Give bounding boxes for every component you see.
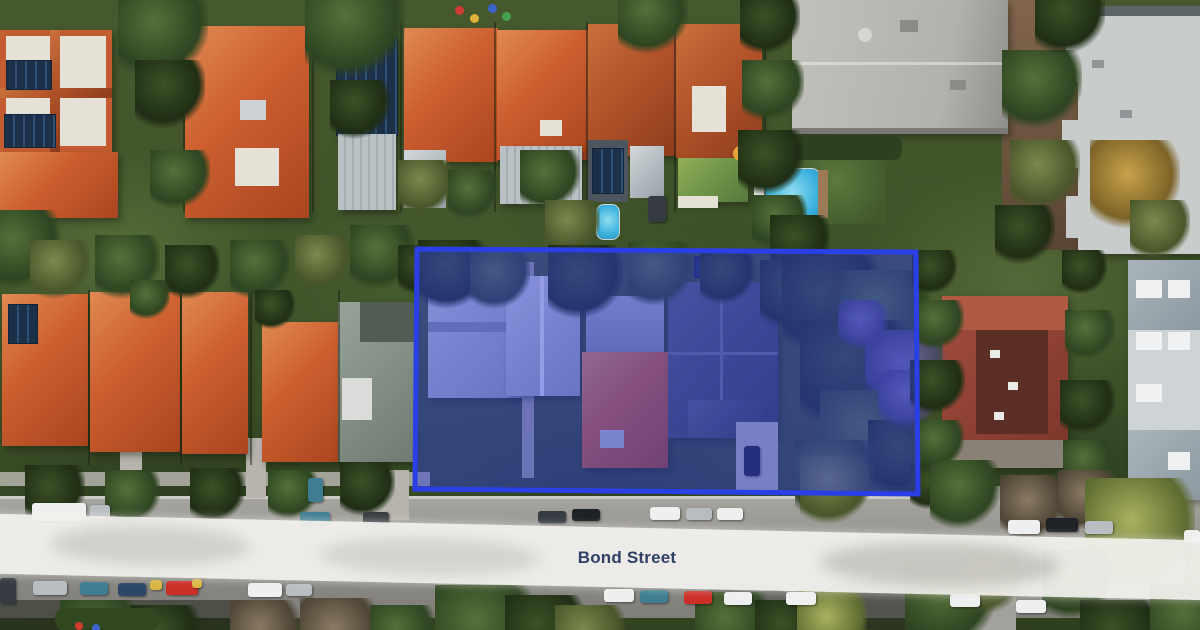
- tree: [740, 0, 800, 55]
- tree: [1002, 50, 1082, 130]
- playground-equipment: [470, 14, 479, 23]
- pool-deck: [818, 170, 828, 218]
- parked-car: [1046, 518, 1078, 532]
- parked-car: [717, 508, 743, 520]
- hedge: [55, 608, 160, 630]
- roof-ridge: [792, 62, 1008, 65]
- rooftop-courtyard: [235, 148, 279, 186]
- rooftop-unit: [1120, 110, 1132, 118]
- tree: [130, 280, 170, 320]
- parked-car: [308, 478, 323, 502]
- parked-car: [33, 581, 67, 595]
- tree: [700, 250, 755, 305]
- tree: [742, 60, 804, 122]
- solar-panels: [6, 60, 52, 90]
- parked-car: [686, 508, 712, 520]
- playground-equipment: [455, 6, 464, 15]
- parked-car: [572, 509, 600, 521]
- rooftop-structure: [540, 120, 562, 136]
- house-roof: [182, 292, 248, 454]
- roof-ridge: [668, 352, 778, 355]
- tree: [738, 130, 804, 196]
- tree: [370, 605, 435, 630]
- roof-gable: [360, 302, 414, 342]
- playground-equipment: [92, 624, 100, 630]
- tree: [305, 0, 405, 80]
- tree: [330, 80, 390, 140]
- rooftop-structure: [600, 430, 624, 448]
- playground-equipment: [488, 4, 497, 13]
- rooftop-unit: [1092, 60, 1104, 68]
- band-tree-shadow: [320, 535, 541, 578]
- hedge: [912, 250, 957, 295]
- solar-panels: [4, 114, 56, 148]
- house-roof: [338, 134, 396, 210]
- roof-edge: [792, 128, 1008, 134]
- parked-car: [950, 594, 980, 607]
- tree: [1080, 600, 1160, 630]
- dormer: [1136, 384, 1162, 402]
- house-roof: [404, 28, 498, 162]
- dormer: [1136, 280, 1162, 298]
- house-roof: [262, 322, 342, 462]
- tree: [548, 245, 623, 320]
- parked-car: [248, 583, 282, 597]
- parked-car: [538, 511, 566, 523]
- house-roof: [630, 146, 664, 198]
- playground-equipment: [75, 622, 83, 630]
- tree: [300, 598, 380, 630]
- hedge: [1065, 310, 1115, 360]
- house-roof: [582, 352, 668, 468]
- hedge: [910, 360, 965, 415]
- band-tree-shadow: [50, 523, 251, 567]
- tree: [295, 235, 350, 290]
- street-name-label: Bond Street: [552, 547, 702, 569]
- dormer: [1168, 332, 1190, 350]
- hedge: [190, 468, 245, 523]
- tree: [628, 242, 693, 307]
- parked-car: [604, 589, 634, 602]
- solar-panels: [8, 304, 38, 344]
- awning: [678, 196, 718, 208]
- tree: [448, 170, 498, 220]
- tree: [1035, 0, 1105, 55]
- parked-car: [724, 592, 752, 605]
- fence-line: [180, 290, 182, 465]
- parked-car: [1008, 520, 1040, 534]
- parked-car: [684, 591, 712, 604]
- parked-car: [192, 579, 202, 588]
- skylight: [994, 412, 1004, 420]
- tree: [555, 605, 625, 630]
- parked-car: [744, 446, 760, 476]
- tree: [398, 160, 453, 215]
- hedge: [1060, 380, 1115, 435]
- tree: [838, 300, 888, 350]
- rooftop-structure: [240, 100, 266, 120]
- parked-car: [150, 580, 162, 590]
- tree: [135, 60, 205, 130]
- tree: [165, 245, 220, 300]
- tree: [800, 455, 870, 525]
- parked-car: [640, 590, 668, 603]
- parked-car: [1085, 521, 1113, 534]
- tree: [255, 290, 295, 330]
- fence-line: [88, 290, 90, 465]
- tree: [995, 205, 1055, 265]
- skylight: [1008, 382, 1018, 390]
- tree: [470, 250, 530, 310]
- parked-car: [0, 578, 16, 604]
- parked-car: [650, 507, 680, 520]
- skylight: [990, 350, 1000, 358]
- house-roof: [497, 30, 589, 160]
- dormer: [1168, 452, 1190, 470]
- rooftop-structure: [342, 378, 372, 420]
- parked-car: [118, 583, 146, 596]
- playground-equipment: [502, 12, 511, 21]
- solar-panels: [592, 148, 624, 194]
- hedge: [340, 462, 395, 517]
- tree: [30, 240, 90, 300]
- parked-car: [80, 582, 108, 595]
- dormer: [1168, 280, 1190, 298]
- fence-line: [250, 290, 252, 465]
- rooftop-unit: [900, 20, 918, 32]
- house-roof: [0, 152, 118, 218]
- tree: [1130, 200, 1190, 260]
- fence-line: [338, 290, 340, 465]
- tree: [230, 600, 300, 630]
- fence-line: [414, 290, 416, 465]
- aerial-photo: Bond Street: [0, 0, 1200, 630]
- tree: [150, 150, 210, 210]
- rooftop-unit: [950, 80, 966, 90]
- hedge: [914, 300, 964, 350]
- fence-line: [586, 22, 588, 212]
- tree: [1010, 140, 1080, 210]
- tree: [618, 0, 688, 55]
- hedge: [1062, 250, 1107, 295]
- rooftop-structure: [692, 86, 726, 132]
- parked-van: [648, 196, 666, 222]
- dormer: [1136, 332, 1162, 350]
- band-tree-shadow: [819, 540, 1060, 589]
- parked-car: [286, 584, 312, 596]
- tree: [930, 460, 1000, 530]
- parked-car: [1016, 600, 1046, 613]
- satellite-dish: [858, 28, 872, 42]
- parked-car: [786, 592, 816, 605]
- roof-ridge: [540, 276, 544, 396]
